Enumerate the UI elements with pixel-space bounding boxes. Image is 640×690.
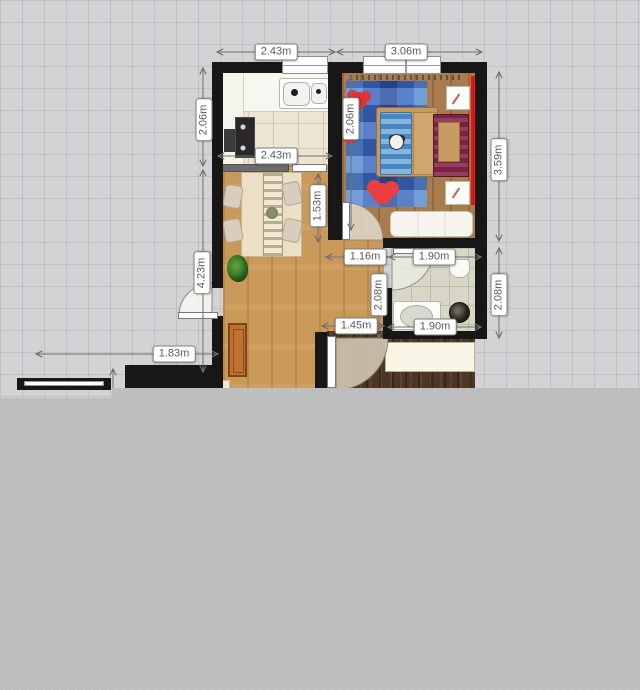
kitchen-sink-unit[interactable] (279, 78, 329, 109)
dimension-label-bedroom-depth-right[interactable]: 3.59m (491, 139, 508, 182)
window-mullion (283, 65, 327, 66)
kitchen-stove[interactable] (235, 117, 255, 158)
dimension-label-kitchen-depth-left[interactable]: 2.06m (196, 99, 213, 142)
bed[interactable] (376, 107, 438, 177)
dimension-label-hall-width-inner[interactable]: 1.16m (344, 249, 387, 266)
door-panel-inset (233, 329, 244, 373)
unrendered-region (112, 388, 640, 690)
balcony-door-slab[interactable] (178, 312, 218, 319)
dimension-label-bedroom-depth-inner[interactable]: 2.06m (343, 98, 360, 141)
balcony-side-window[interactable] (24, 381, 104, 386)
wall-left-upper[interactable] (212, 62, 223, 288)
unrendered-region-left (0, 398, 112, 690)
wall-top[interactable] (212, 62, 487, 73)
wall-entry-left[interactable] (315, 332, 327, 390)
front-door-panel[interactable] (228, 323, 247, 377)
dimension-label-hall-width-lower[interactable]: 1.45m (335, 318, 378, 335)
dimension-label-balcony-width[interactable]: 1.83m (153, 346, 196, 363)
dimension-label-bedroom-width-top[interactable]: 3.06m (385, 44, 428, 61)
wall-balcony-outer[interactable] (125, 365, 215, 390)
dimension-label-bathroom-width-bottom[interactable]: 1.90m (414, 319, 457, 336)
wall-bedroom-bottom[interactable] (383, 238, 475, 248)
nightstand-decor (452, 94, 461, 105)
dimension-label-hall-depth-inner[interactable]: 2.08m (371, 274, 388, 317)
dimension-label-kitchen-width-inner[interactable]: 2.43m (255, 148, 298, 165)
crib[interactable] (433, 114, 469, 177)
mickey-plush-icon (389, 134, 404, 150)
crib-blanket (438, 122, 460, 162)
window-mullion (364, 65, 440, 66)
nightstand[interactable] (445, 181, 470, 205)
floorplan-canvas[interactable]: 2.43m3.06m2.06m4.23m3.59m2.08m2.43m2.06m… (0, 0, 640, 690)
bedroom-sofa[interactable] (390, 211, 473, 237)
kitchen-bar-counter[interactable] (222, 164, 289, 172)
wall-kitchen-bedroom[interactable] (328, 62, 342, 240)
potted-plant[interactable] (227, 255, 248, 282)
wardrobe[interactable] (385, 342, 475, 372)
nightstand-decor (452, 188, 461, 199)
dining-chair[interactable] (222, 218, 244, 244)
entry-door-slab[interactable] (327, 336, 336, 388)
nightstand[interactable] (446, 86, 470, 110)
kitchen-sliding-door[interactable] (292, 164, 327, 172)
curtain-rail (350, 75, 460, 80)
dimension-label-bathroom-depth-right[interactable]: 2.08m (491, 274, 508, 317)
kitchen-appliance[interactable] (224, 129, 235, 152)
rug-mickey-motif (372, 183, 393, 204)
table-centerpiece (266, 207, 278, 219)
dimension-label-living-depth-left[interactable]: 4.23m (194, 252, 211, 295)
dimension-label-bathroom-width-top[interactable]: 1.90m (413, 249, 456, 266)
sink-drain-left (291, 89, 298, 96)
wall-right[interactable] (475, 62, 487, 338)
dimension-label-living-clearance-inner[interactable]: 1.53m (310, 185, 327, 228)
bedroom-door-slab[interactable] (342, 202, 350, 240)
sink-drain-right (316, 89, 321, 94)
dimension-label-kitchen-width-top[interactable]: 2.43m (255, 44, 298, 61)
